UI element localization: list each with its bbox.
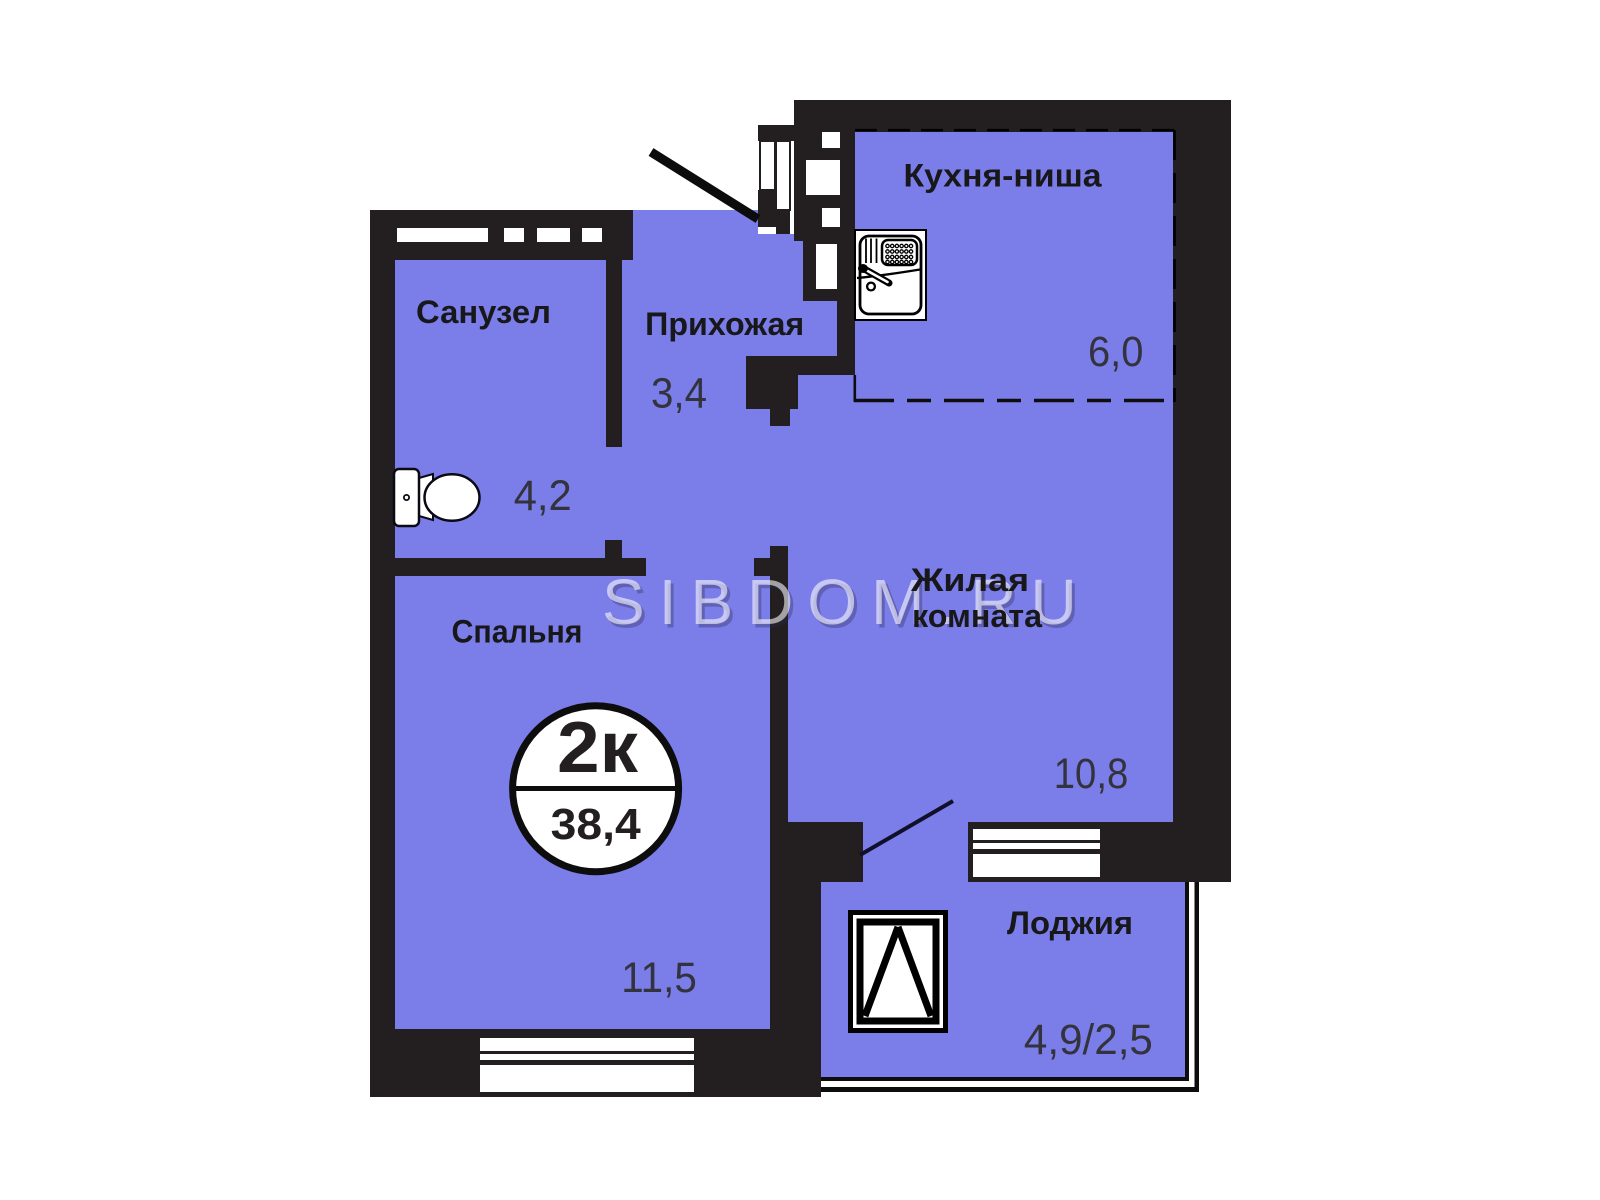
- svg-text:Спальня: Спальня: [452, 614, 583, 650]
- svg-text:Кухня-ниша: Кухня-ниша: [904, 158, 1102, 194]
- svg-text:Лоджия: Лоджия: [1007, 905, 1133, 941]
- svg-text:комната: комната: [912, 598, 1042, 634]
- svg-text:Жилая: Жилая: [910, 562, 1029, 598]
- svg-text:4,9/2,5: 4,9/2,5: [1024, 1016, 1153, 1064]
- svg-text:6,0: 6,0: [1088, 328, 1144, 376]
- svg-text:11,5: 11,5: [621, 954, 697, 1002]
- svg-text:2к: 2к: [557, 708, 639, 788]
- svg-text:10,8: 10,8: [1054, 750, 1129, 798]
- svg-text:4,2: 4,2: [514, 472, 572, 520]
- svg-text:38,4: 38,4: [551, 800, 642, 849]
- svg-text:Санузел: Санузел: [416, 294, 551, 330]
- svg-text:3,4: 3,4: [651, 370, 707, 418]
- svg-text:Прихожая: Прихожая: [645, 306, 804, 342]
